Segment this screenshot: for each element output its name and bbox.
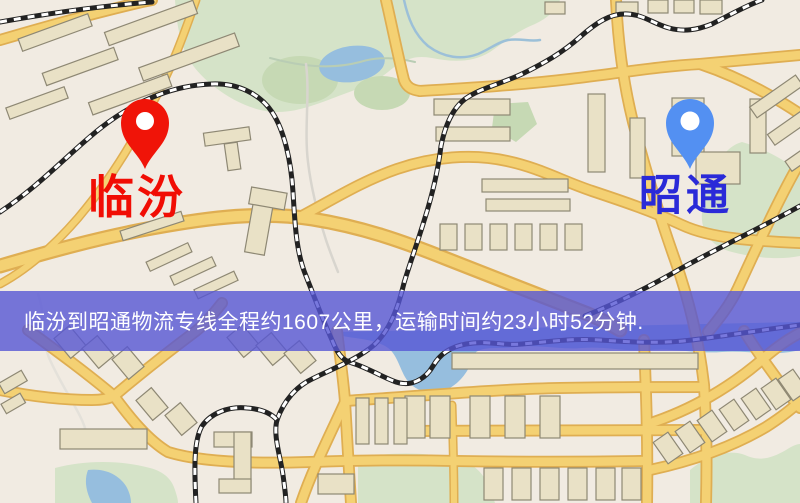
origin-pin-icon [121, 99, 169, 169]
route-info-banner: 临汾到昭通物流专线全程约1607公里，运输时间约23小时52分钟. [0, 291, 800, 351]
map-image: 临汾 昭通 临汾到昭通物流专线全程约1607公里，运输时间约23小时52分钟. [0, 0, 800, 503]
route-info-text: 临汾到昭通物流专线全程约1607公里，运输时间约23小时52分钟. [24, 306, 644, 336]
origin-city-label: 临汾 [88, 174, 186, 220]
destination-city-label: 昭通 [639, 175, 733, 218]
map-canvas [0, 0, 800, 503]
